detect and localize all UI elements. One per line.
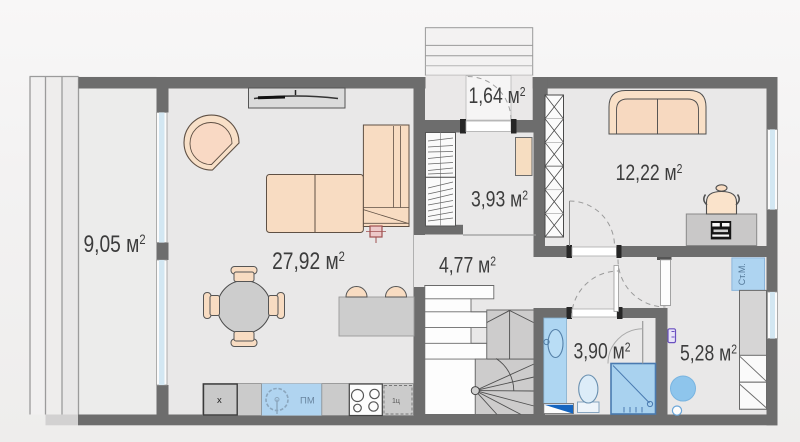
- svg-text:ПМ: ПМ: [300, 396, 315, 407]
- svg-text:12,22 м2: 12,22 м2: [616, 161, 683, 185]
- svg-text:4,77 м2: 4,77 м2: [439, 254, 496, 278]
- svg-text:27,92 м2: 27,92 м2: [272, 247, 345, 275]
- svg-text:3,93 м2: 3,93 м2: [471, 188, 528, 212]
- svg-text:Ст.М.: Ст.М.: [737, 263, 747, 285]
- svg-text:5,28 м2: 5,28 м2: [680, 342, 737, 366]
- svg-text:9,05 м2: 9,05 м2: [83, 230, 145, 258]
- svg-text:1,64 м2: 1,64 м2: [469, 84, 526, 108]
- svg-text:1ц: 1ц: [392, 398, 400, 405]
- svg-text:x: x: [217, 395, 222, 406]
- svg-text:3,90 м2: 3,90 м2: [574, 340, 631, 364]
